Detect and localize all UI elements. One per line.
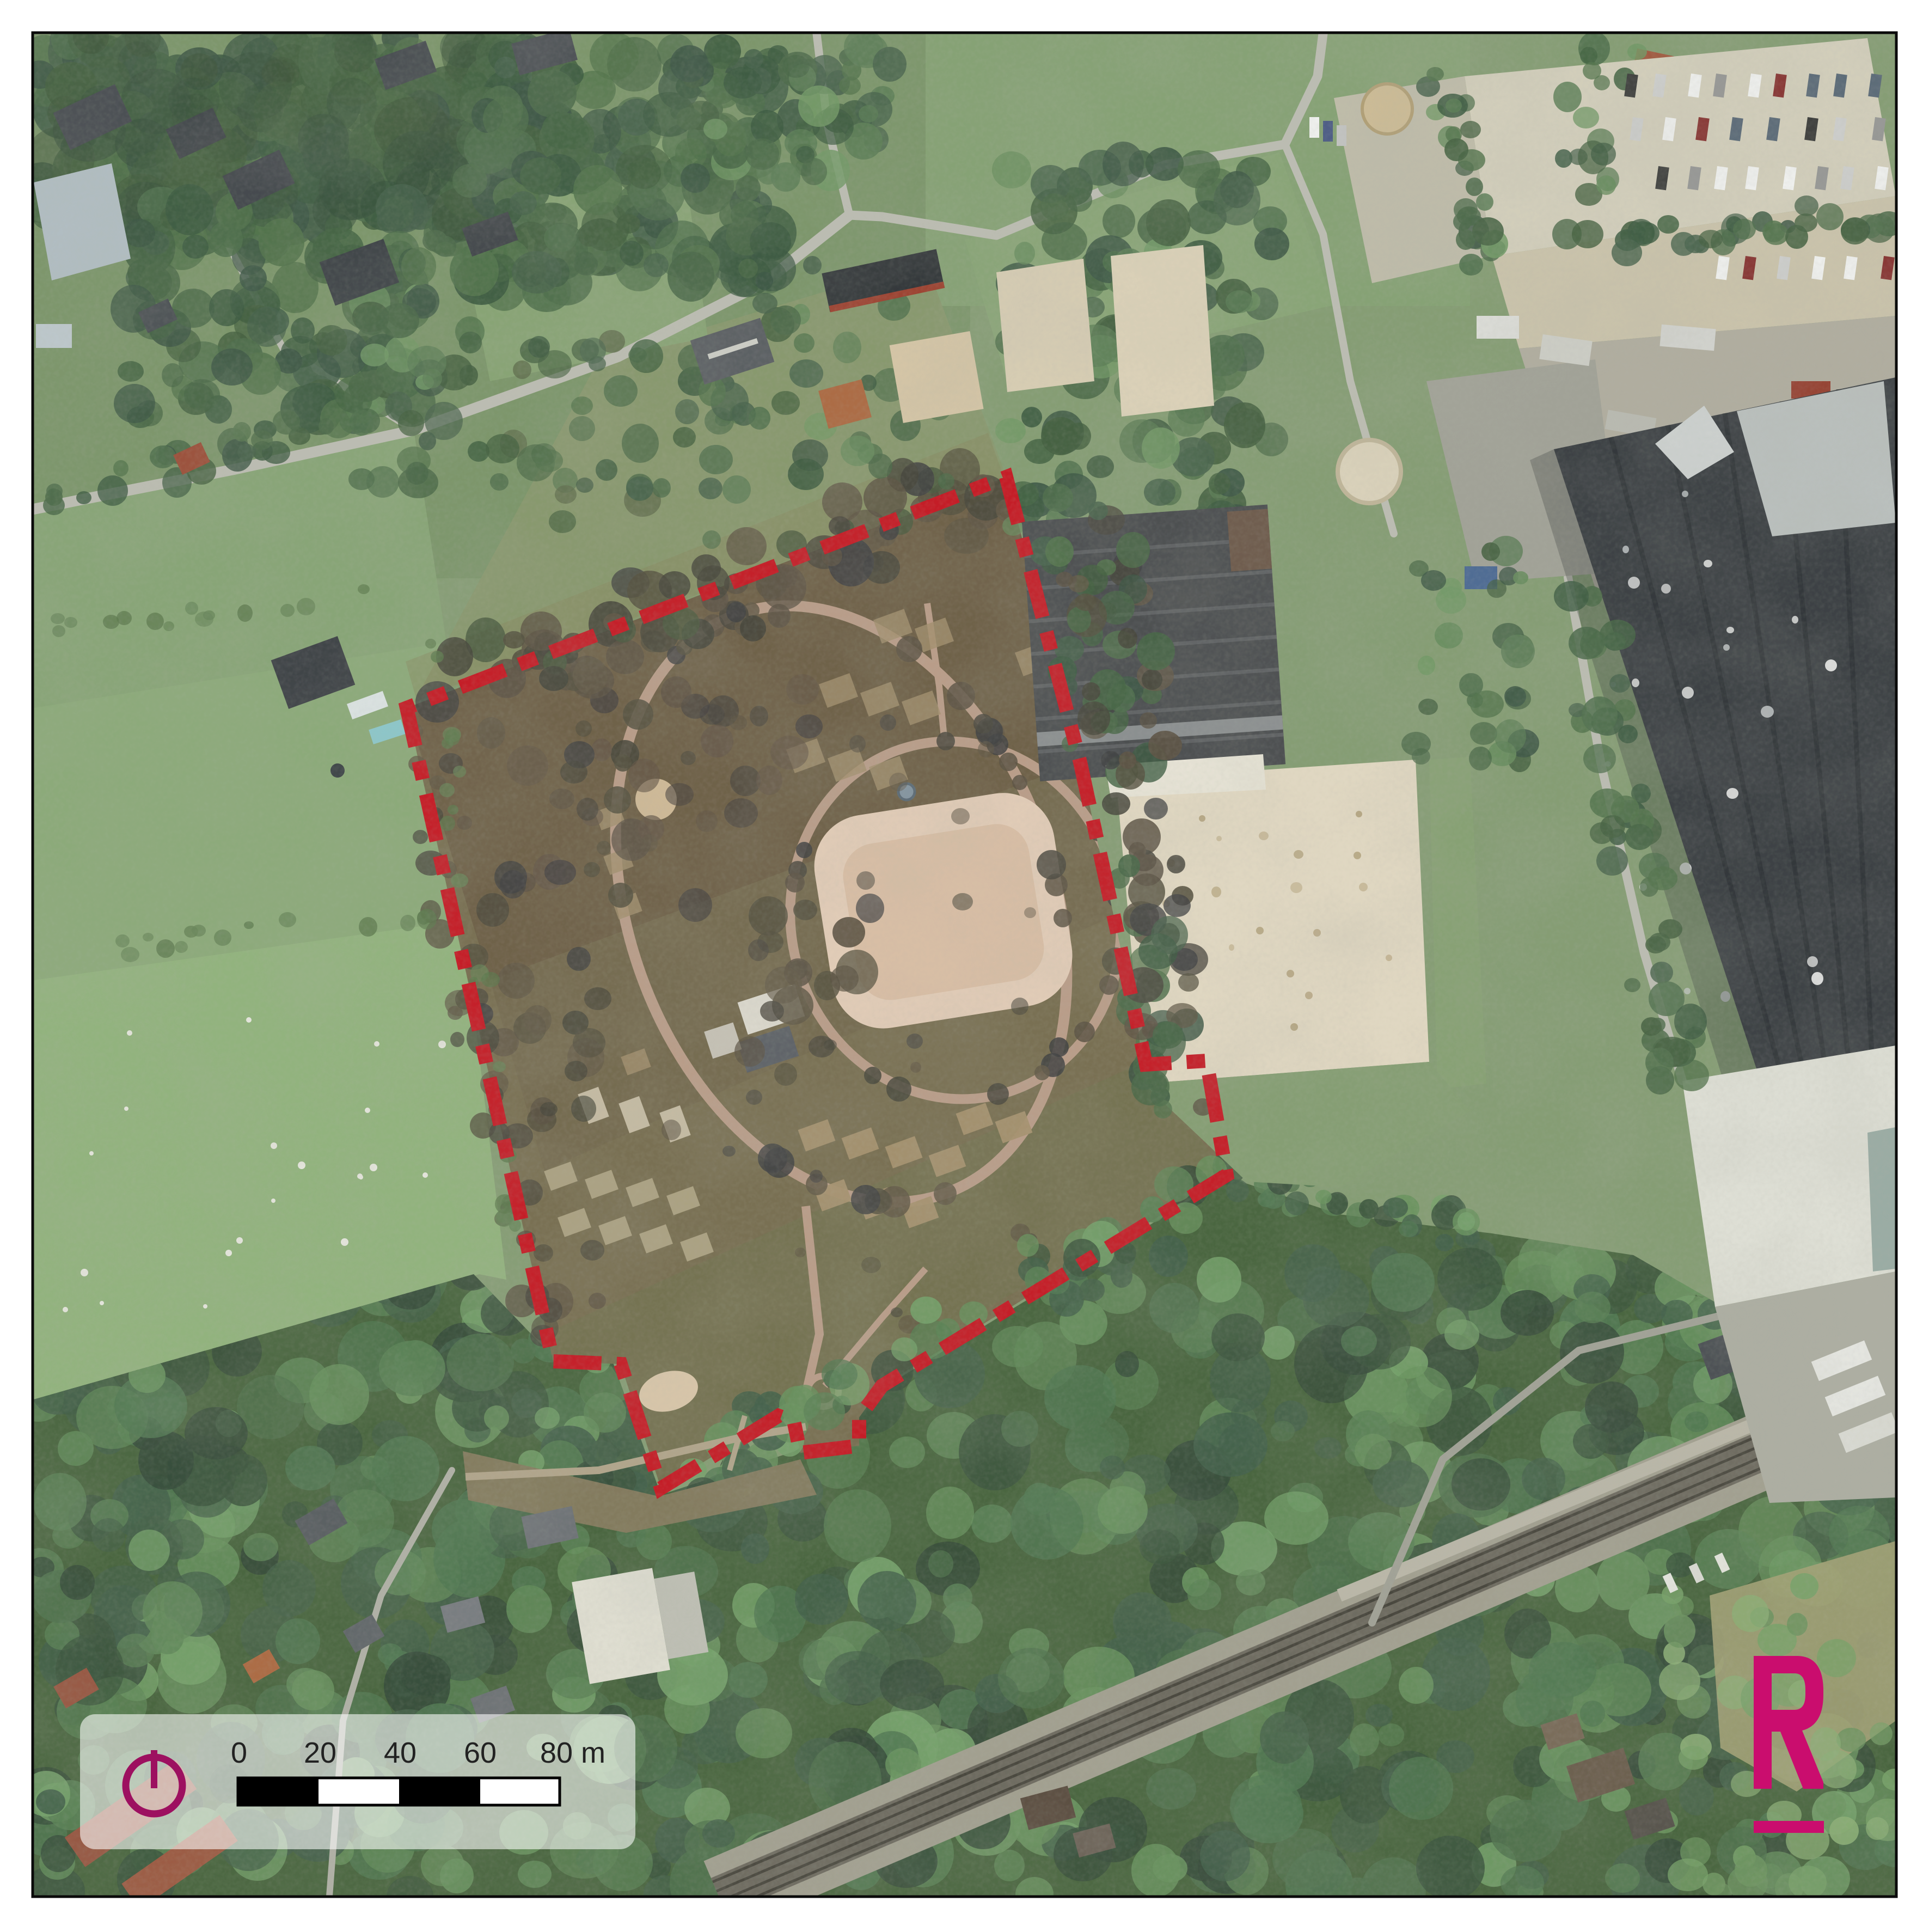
svg-text:80 m: 80 m	[540, 1737, 605, 1769]
svg-text:0: 0	[231, 1737, 247, 1769]
svg-text:60: 60	[464, 1737, 497, 1769]
svg-text:40: 40	[384, 1737, 417, 1769]
svg-text:20: 20	[304, 1737, 336, 1769]
